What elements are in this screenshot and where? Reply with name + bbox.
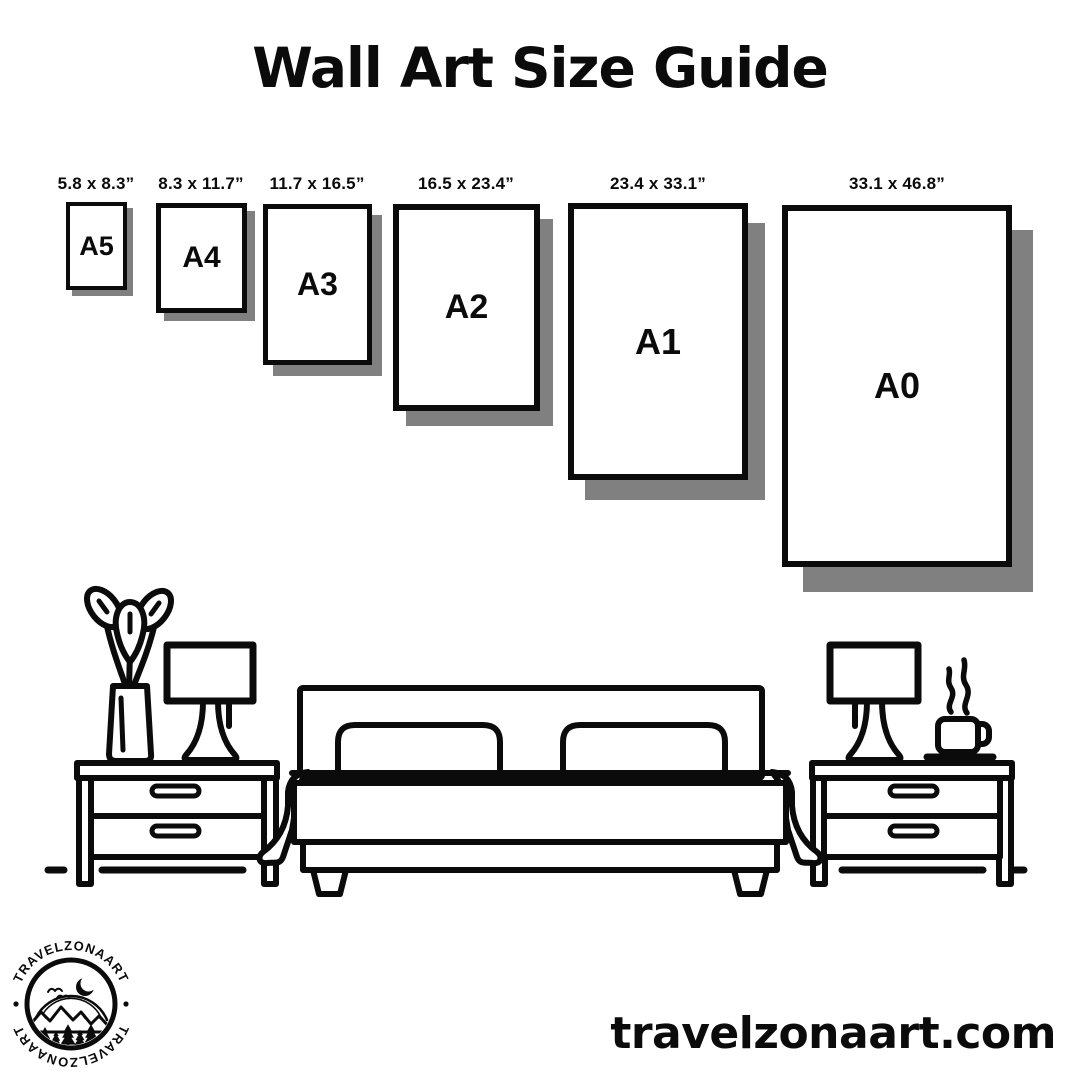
nightstand-left-icon	[77, 763, 277, 884]
table-lamp-right-icon	[830, 645, 918, 760]
double-bed-icon	[260, 688, 821, 894]
bedroom-scene-illustration	[0, 0, 1080, 1080]
plant-vase-icon	[80, 583, 178, 761]
logo-dot-left	[13, 1001, 18, 1006]
logo-dot-right	[123, 1001, 128, 1006]
table-lamp-left-icon	[167, 645, 253, 760]
brand-logo: TRAVELZONAART TRAVELZONAART	[10, 936, 132, 1072]
nightstand-right-icon	[812, 763, 1012, 884]
website-url: travelzonaart.com	[610, 1008, 1056, 1059]
steaming-coffee-cup-icon	[927, 660, 993, 757]
